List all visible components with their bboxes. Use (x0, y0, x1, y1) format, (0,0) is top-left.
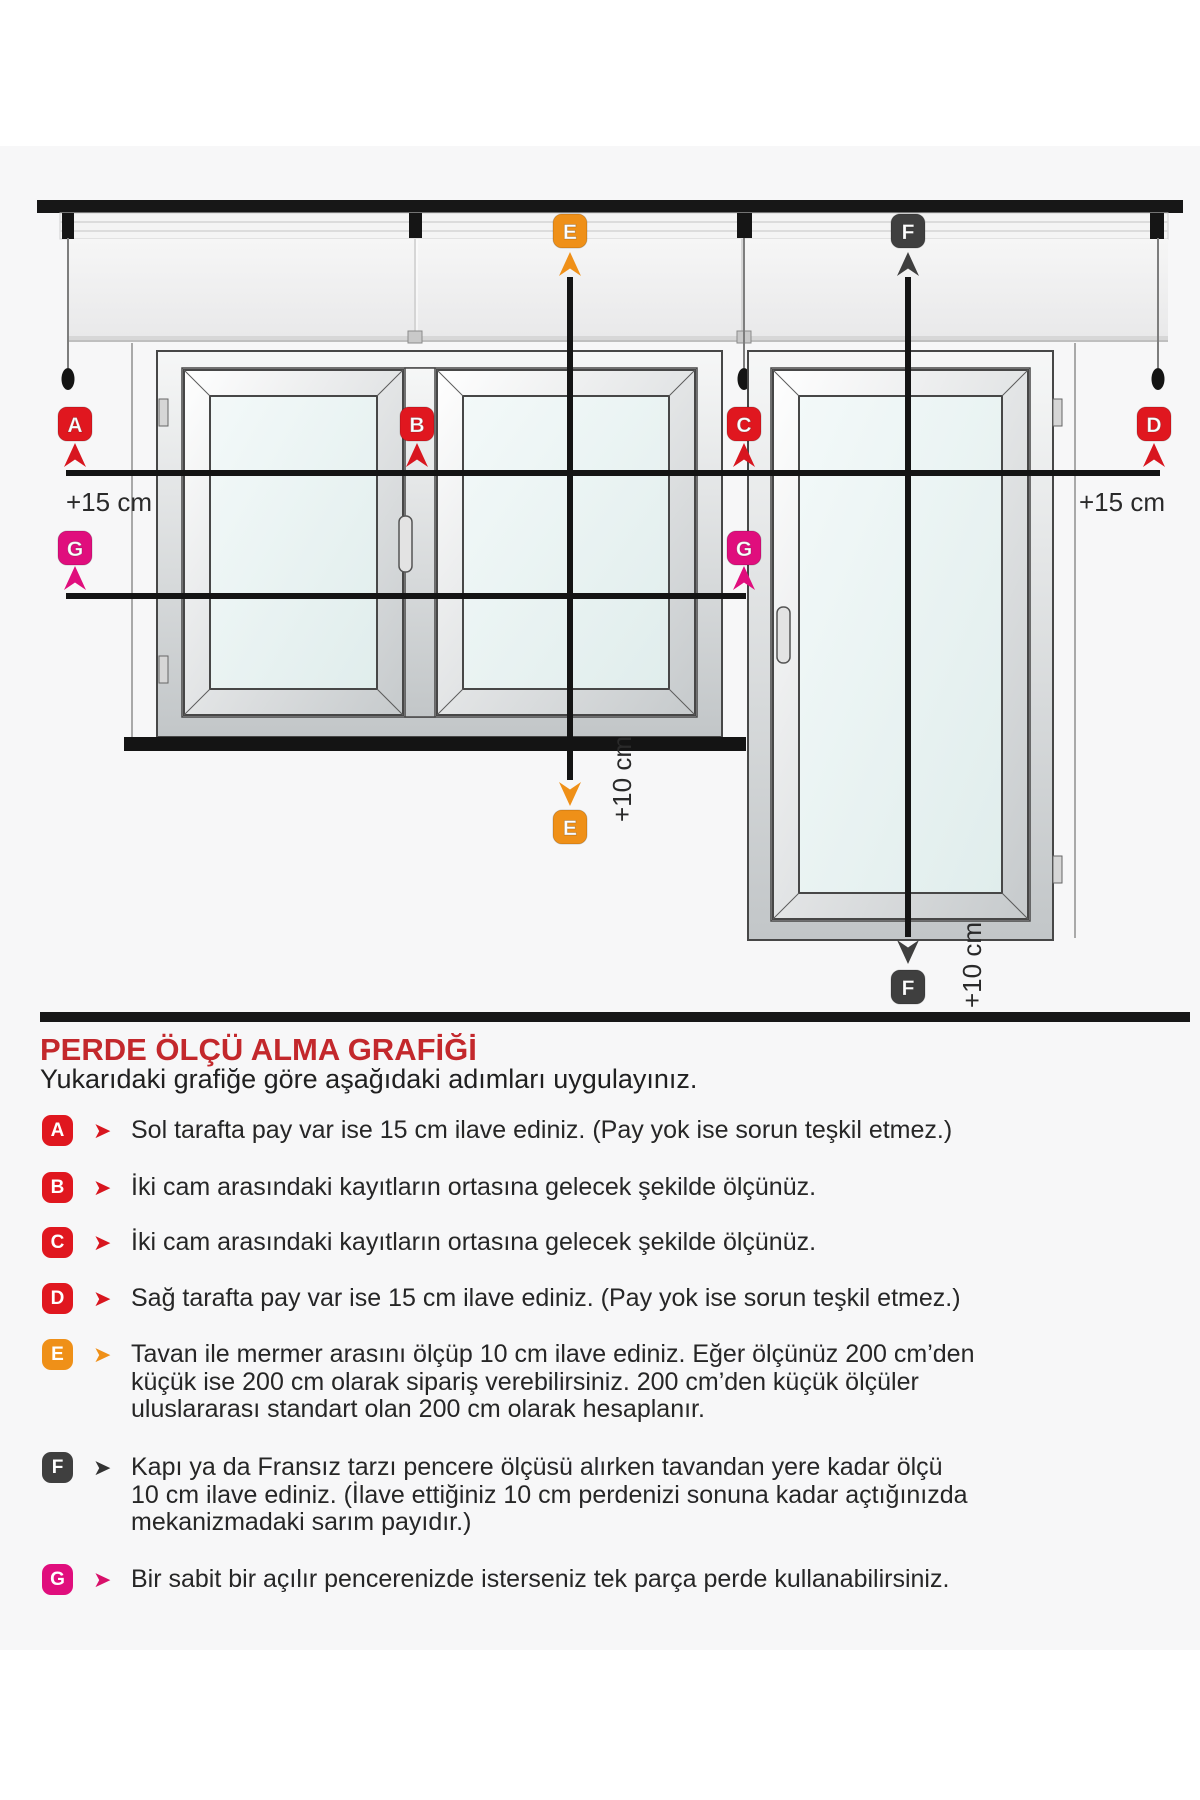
svg-text:E: E (563, 221, 577, 244)
door-hinge (1053, 399, 1062, 426)
chevron-right-icon: ➤ (93, 1172, 117, 1203)
badge-d: D (1137, 407, 1171, 441)
ceiling-rail (37, 200, 1183, 239)
svg-text:G: G (736, 538, 752, 561)
svg-text:F: F (902, 977, 915, 1000)
section-divider (40, 1012, 1190, 1022)
step-badge-d: D (42, 1283, 73, 1314)
step-item-e: E ➤ Tavan ile mermer arasını ölçüp 10 cm… (42, 1339, 1162, 1424)
step-badge-a: A (42, 1115, 73, 1146)
badge-e-bottom: E (553, 810, 587, 844)
measurement-diagram: E F A B C D G G E F +15 cm +15 cm +10 cm (0, 0, 1200, 1030)
step-text-g: Bir sabit bir açılır pencerenizde isters… (131, 1564, 949, 1594)
svg-text:B: B (409, 414, 424, 437)
plus15-right-label: +15 cm (1079, 487, 1165, 517)
svg-text:F: F (902, 221, 915, 244)
window-hinge (159, 656, 168, 683)
svg-text:E: E (563, 817, 577, 840)
badge-e-top: E (553, 214, 587, 248)
badge-f-bottom: F (891, 970, 925, 1004)
chevron-right-icon: ➤ (93, 1283, 117, 1314)
arrow-up-icon (64, 443, 86, 467)
step-badge-e: E (42, 1339, 73, 1370)
marble-sill (124, 737, 746, 751)
page-subtitle: Yukarıdaki grafiğe göre aşağıdaki adımla… (40, 1064, 697, 1094)
badge-g-right: G (727, 531, 761, 565)
door-hinge (1053, 856, 1062, 883)
step-item-a: A ➤ Sol tarafta pay var ise 15 cm ilave … (42, 1115, 1162, 1146)
door-handle (777, 607, 790, 663)
step-badge-g: G (42, 1564, 73, 1595)
step-item-f: F ➤ Kapı ya da Fransız tarzı pencere ölç… (42, 1452, 1162, 1537)
step-item-b: B ➤ İki cam arasındaki kayıtların ortası… (42, 1172, 1162, 1203)
step-text-c: İki cam arasındaki kayıtların ortasına g… (131, 1227, 816, 1257)
window-handle (399, 516, 412, 572)
svg-text:A: A (67, 414, 82, 437)
step-item-d: D ➤ Sağ tarafta pay var ise 15 cm ilave … (42, 1283, 1162, 1314)
badge-f-top: F (891, 214, 925, 248)
chevron-right-icon: ➤ (93, 1564, 117, 1595)
badge-c: C (727, 407, 761, 441)
step-badge-b: B (42, 1172, 73, 1203)
chevron-right-icon: ➤ (93, 1227, 117, 1258)
step-item-g: G ➤ Bir sabit bir açılır pencerenizde is… (42, 1564, 1162, 1595)
badge-g-left: G (58, 531, 92, 565)
arrow-down-icon (897, 940, 919, 964)
step-text-f: Kapı ya da Fransız tarzı pencere ölçüsü … (131, 1452, 976, 1537)
svg-text:D: D (1146, 414, 1161, 437)
arrow-down-icon (559, 782, 581, 806)
left-window (157, 351, 722, 737)
badge-b: B (400, 407, 434, 441)
chevron-right-icon: ➤ (93, 1115, 117, 1146)
svg-text:C: C (736, 414, 751, 437)
arrow-up-icon (1143, 443, 1165, 467)
step-text-a: Sol tarafta pay var ise 15 cm ilave edin… (131, 1115, 952, 1145)
chevron-right-icon: ➤ (93, 1452, 117, 1483)
infographic: E F A B C D G G E F +15 cm +15 cm +10 cm (0, 0, 1200, 1800)
badge-a: A (58, 407, 92, 441)
step-item-c: C ➤ İki cam arasındaki kayıtların ortası… (42, 1227, 1162, 1258)
step-badge-c: C (42, 1227, 73, 1258)
step-text-e: Tavan ile mermer arasını ölçüp 10 cm ila… (131, 1339, 1043, 1424)
step-text-d: Sağ tarafta pay var ise 15 cm ilave edin… (131, 1283, 961, 1313)
curtain-valance (68, 239, 1168, 343)
page-title: PERDE ÖLÇÜ ALMA GRAFİĞİ (40, 1033, 477, 1067)
plus15-left-label: +15 cm (66, 487, 152, 517)
step-badge-f: F (42, 1452, 73, 1483)
svg-text:G: G (67, 538, 83, 561)
plus10-e-label: +10 cm (607, 736, 637, 822)
chevron-right-icon: ➤ (93, 1339, 117, 1370)
window-hinge (159, 399, 168, 426)
arrow-up-icon (64, 566, 86, 590)
plus10-f-label: +10 cm (957, 922, 987, 1008)
step-text-b: İki cam arasındaki kayıtların ortasına g… (131, 1172, 816, 1202)
